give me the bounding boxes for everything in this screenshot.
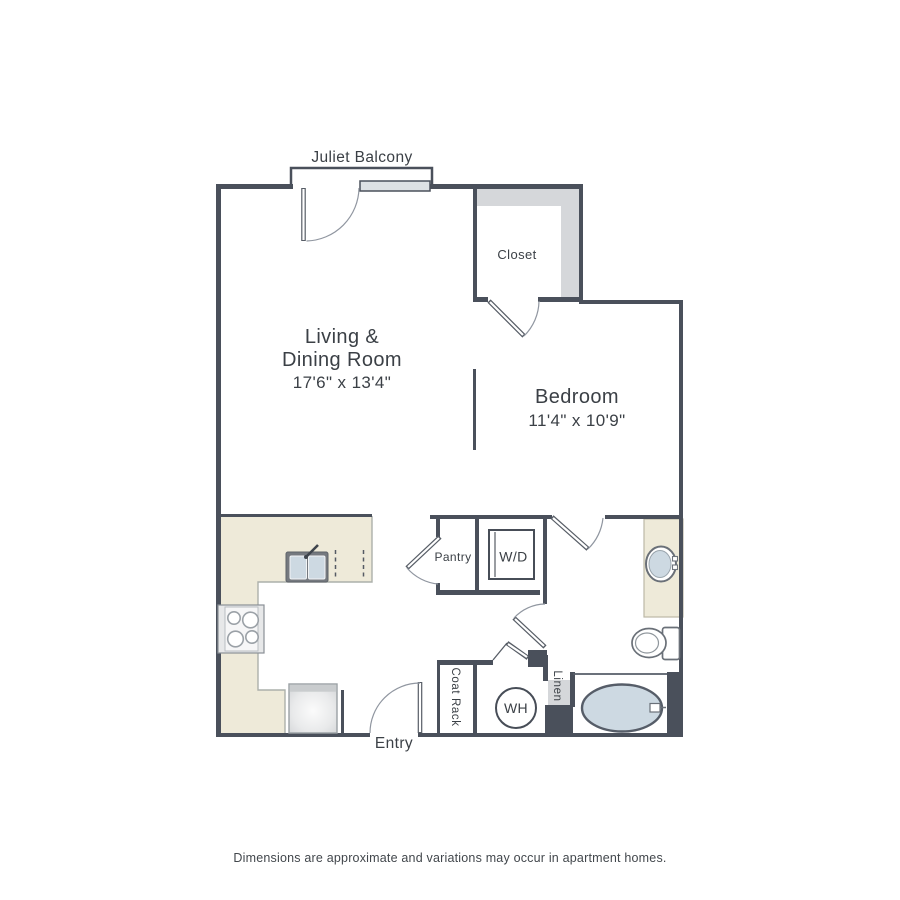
wall-top-left: [216, 184, 293, 189]
wall-block-tub-right: [667, 672, 683, 737]
labels: Juliet Balcony Closet Living & Dining Ro…: [233, 149, 666, 865]
wall-pantry-wd-bottom: [436, 590, 540, 595]
wall-linen-right: [570, 672, 575, 707]
wall-wd-right: [543, 515, 547, 604]
water-heater-bifold-door: [493, 643, 528, 660]
wall-closet-left: [473, 184, 477, 302]
water-heater-label: WH: [504, 700, 528, 716]
closet-door: [489, 301, 539, 336]
washer-dryer-label: W/D: [499, 549, 527, 565]
wall-closet-bottom: [538, 297, 583, 302]
stove-burner: [228, 612, 240, 624]
balcony-window: [360, 181, 430, 191]
stove-burner: [228, 631, 244, 647]
linen-label: Linen: [551, 670, 563, 701]
coat-rack-label: Coat Rack: [449, 667, 461, 726]
wall-entry-stub: [341, 690, 344, 733]
bedroom-dimensions: 11'4" x 10'9": [528, 411, 625, 430]
wall-linen-left: [543, 655, 548, 681]
wall-left: [216, 184, 221, 737]
wall-bedroom-top: [579, 300, 683, 304]
bathroom-sink: [646, 547, 678, 582]
juliet-balcony-label: Juliet Balcony: [311, 149, 412, 166]
toilet: [632, 628, 680, 660]
walls: [216, 184, 683, 737]
balcony-door: [304, 188, 360, 241]
sink-tap: [673, 565, 678, 570]
wall-block-tub-left: [545, 705, 573, 735]
wall-pantry-wd-divider: [475, 515, 479, 592]
kitchen-counter-back-edge: [219, 514, 372, 517]
floor-plan-page: Juliet Balcony Closet Living & Dining Ro…: [0, 0, 900, 900]
bathtub: [573, 674, 667, 732]
wall-hall-top-left: [430, 515, 552, 519]
entry-door: [370, 682, 420, 733]
sink-tap: [673, 557, 678, 562]
refrigerator: [289, 684, 337, 733]
living-room-label-line1: Living &: [305, 326, 380, 348]
tub-faucet: [650, 704, 660, 713]
wall-living-bedroom-stub: [473, 369, 476, 450]
wall-bathroom-top: [605, 515, 683, 519]
bathroom-bedroom-door: [552, 517, 603, 549]
doors: [304, 188, 604, 733]
closet-label: Closet: [497, 247, 536, 262]
stove-burner: [243, 612, 259, 628]
closet-shelf-right: [561, 189, 581, 298]
wall-top-right: [430, 184, 583, 189]
wall-coatrack-right: [473, 660, 477, 733]
juliet-balcony: [291, 168, 432, 191]
wall-closet-bottom-stub: [473, 297, 488, 302]
bathroom-hall-door: [514, 604, 545, 647]
wall-pantry-left-upper: [436, 515, 440, 537]
wall-coatrack-left: [437, 660, 440, 733]
living-room-dimensions: 17'6" x 13'4": [293, 373, 391, 392]
pantry-label: Pantry: [434, 550, 471, 564]
living-room-label-line2: Dining Room: [282, 349, 402, 371]
bedroom-label: Bedroom: [535, 386, 619, 408]
stove-burner: [246, 631, 258, 643]
disclaimer-text: Dimensions are approximate and variation…: [233, 851, 666, 865]
wall-coatrack-top: [437, 660, 493, 665]
wall-closet-right: [579, 184, 583, 302]
floor-plan-canvas: Juliet Balcony Closet Living & Dining Ro…: [0, 0, 900, 900]
stove: [218, 605, 264, 653]
entry-label: Entry: [375, 735, 413, 752]
